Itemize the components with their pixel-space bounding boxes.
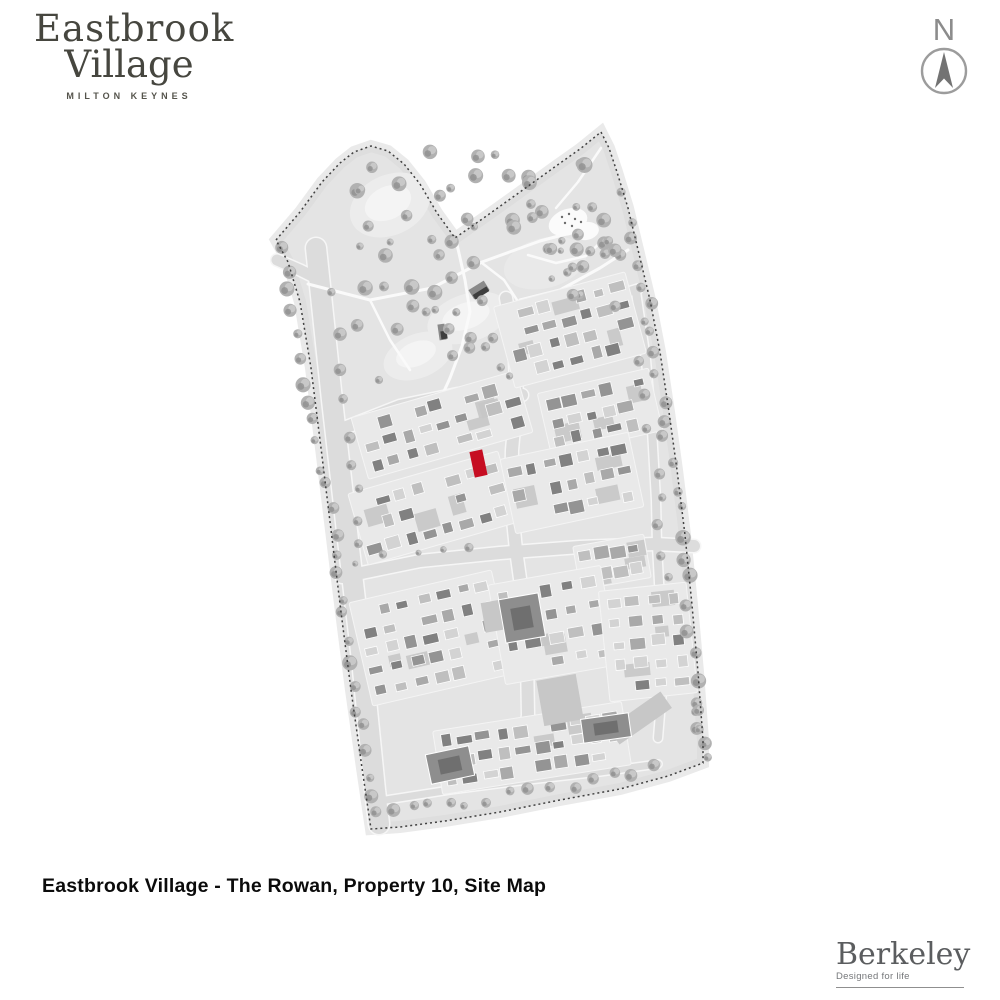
developer-logo-tagline: Designed for life — [836, 971, 964, 982]
housing-block — [598, 582, 697, 702]
site-map — [0, 0, 1000, 1000]
page: Eastbrook Village MILTON KEYNES N Eastbr… — [0, 0, 1000, 1000]
developer-logo-name: Berkeley — [836, 940, 964, 970]
developer-logo: Berkeley Designed for life — [836, 940, 964, 988]
map-caption: Eastbrook Village - The Rowan, Property … — [42, 875, 546, 898]
site-map-canvas — [0, 0, 1000, 1000]
